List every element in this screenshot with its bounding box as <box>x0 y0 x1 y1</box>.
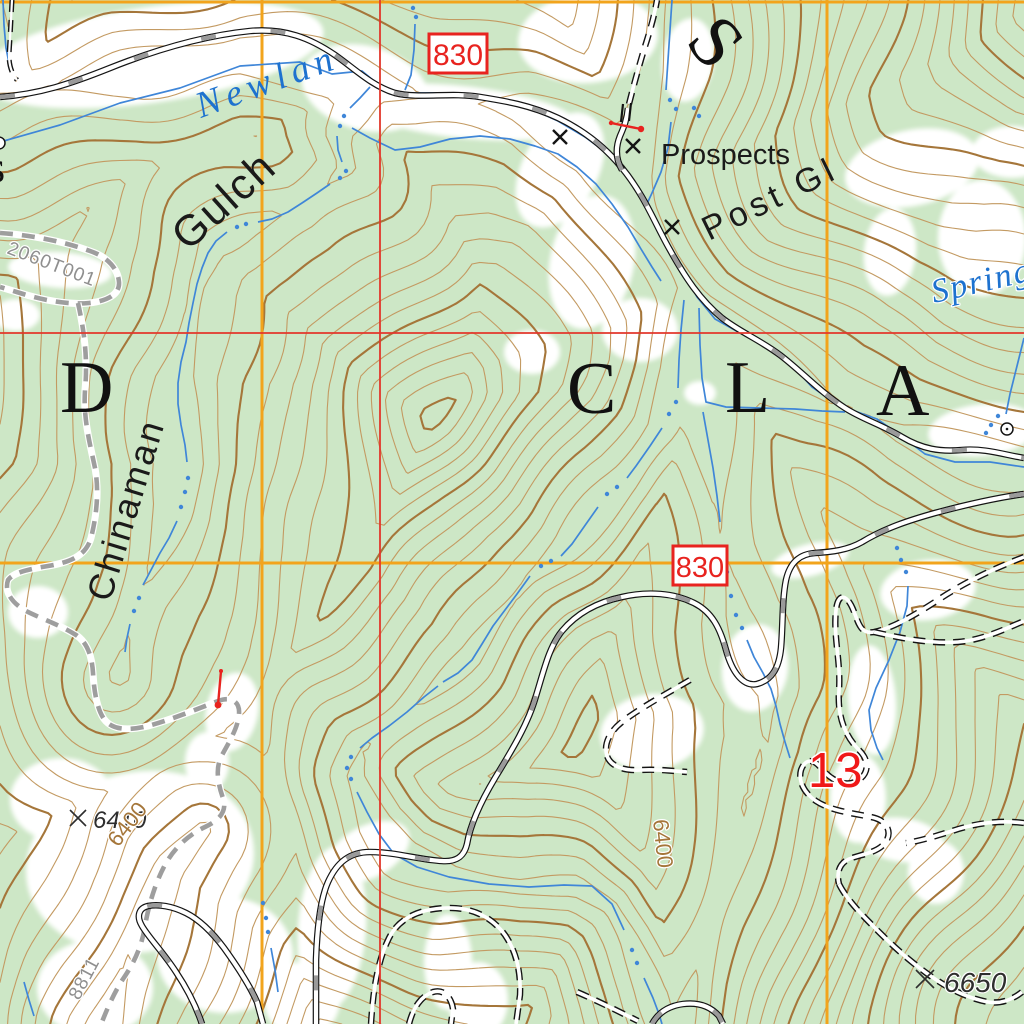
stream-dots <box>338 124 342 128</box>
stream-dots <box>630 948 634 952</box>
stream-dots <box>344 169 348 173</box>
stream-dots <box>266 930 270 934</box>
clearing-blob <box>504 330 560 374</box>
stream-dots <box>668 98 672 102</box>
edge-letter-s-partial: s <box>0 143 5 192</box>
stream-dots <box>989 423 993 427</box>
stream-dots <box>692 106 696 110</box>
stream-dots <box>179 505 183 509</box>
feature-label-prospects: Prospects <box>661 139 790 171</box>
boundary-letter-l: L <box>725 347 770 429</box>
stream-dots <box>899 558 903 562</box>
stream-dots <box>904 570 908 574</box>
section-number: 13 <box>808 744 863 798</box>
boundary-letter-d: D <box>60 347 113 429</box>
stream-dots <box>635 961 639 965</box>
stream-dots <box>549 559 553 563</box>
stream-dots <box>734 613 738 617</box>
boundary-letter-c: C <box>567 348 616 430</box>
stream-dots <box>615 485 619 489</box>
stream-dots <box>411 6 415 10</box>
route-shield-830-north: 830 <box>429 34 487 73</box>
stream-dots <box>697 114 701 118</box>
stream-dots <box>345 766 349 770</box>
stream-dots <box>605 492 609 496</box>
stream-dots <box>740 626 744 630</box>
route-shield-830-south: 830 <box>673 546 727 585</box>
stream-dots <box>244 222 248 226</box>
stream-dots <box>729 594 733 598</box>
stream-dots <box>342 114 346 118</box>
boundary-letter-a: A <box>876 350 929 432</box>
stream-dots <box>539 564 543 568</box>
stream-dots <box>667 412 671 416</box>
stream-dots <box>338 176 342 180</box>
stream-dots <box>264 916 268 920</box>
stream-dots <box>414 15 418 19</box>
spring-dot-icon <box>1006 428 1009 431</box>
clearing-blob <box>8 586 68 638</box>
stream-dots <box>137 596 141 600</box>
topo-map-viewport: 830 830 D C L A S s Newlan Spring Gulch … <box>0 0 1024 1024</box>
topo-map-canvas: 830 830 D C L A S s Newlan Spring Gulch … <box>0 0 1024 1024</box>
stream-dots <box>235 225 239 229</box>
clearing-blob <box>684 381 716 405</box>
stream-dots <box>984 431 988 435</box>
stream-dots <box>186 476 190 480</box>
stream-dots <box>132 609 136 613</box>
contour-label-6400-center: 6400 <box>648 818 678 869</box>
stream-dots <box>674 107 678 111</box>
stream-dots <box>183 490 187 494</box>
stream-dots <box>674 400 678 404</box>
stream-dots <box>349 755 353 759</box>
stream-dots <box>895 546 899 550</box>
stream-dots <box>996 414 1000 418</box>
spot-elevation-6650: 6650 <box>944 967 1007 998</box>
route-shield-830-north-label: 830 <box>433 39 483 72</box>
route-shield-830-south-label: 830 <box>676 552 724 584</box>
stream-dots <box>349 777 353 781</box>
stream-dots <box>261 901 265 905</box>
